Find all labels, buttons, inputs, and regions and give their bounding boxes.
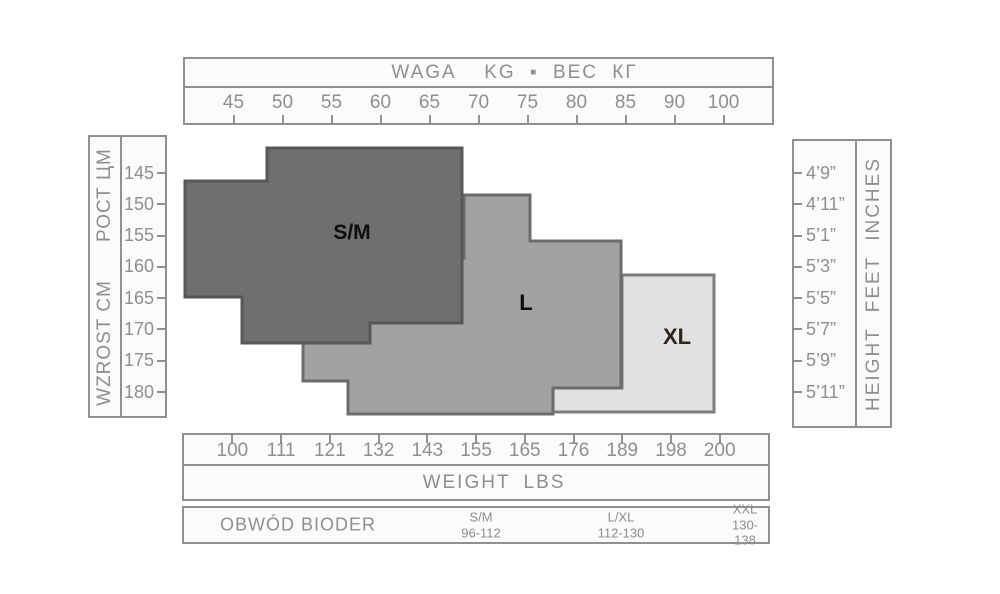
tick-mark bbox=[157, 360, 165, 362]
lbs-tick-label: 111 bbox=[267, 440, 296, 462]
right-axis-title: HEIGHT FEET INCHES bbox=[863, 157, 885, 411]
lbs-tick-label: 100 bbox=[217, 440, 249, 462]
tick-mark bbox=[157, 328, 165, 330]
kg-tick-label: 45 bbox=[223, 92, 244, 114]
kg-tick: 80 bbox=[552, 88, 601, 123]
cm-tick: 170 bbox=[122, 319, 165, 339]
tick-mark bbox=[794, 203, 802, 205]
tick-mark bbox=[475, 435, 477, 443]
size-chart: S/M L XL WAGA KG ▪ ВЕС КГ 45 50 55 60 65… bbox=[0, 0, 1000, 594]
lbs-tick: 143 bbox=[403, 435, 452, 464]
lbs-tick: 100 bbox=[208, 435, 257, 464]
right-axis-title-text: HEIGHT FEET INCHES bbox=[863, 157, 885, 411]
lbs-tick-label: 143 bbox=[411, 440, 443, 462]
hip-entry-size: S/M bbox=[461, 509, 501, 525]
tick-mark bbox=[426, 435, 428, 443]
right-axis-feet: 4’9” 4’11” 5’1” 5’3” 5’5” 5’7” 5’9” 5’11… bbox=[792, 139, 857, 428]
tick-mark bbox=[719, 435, 721, 443]
tick-mark bbox=[478, 115, 480, 123]
kg-tick-label: 90 bbox=[664, 92, 685, 114]
hip-entry-range: 112-130 bbox=[598, 525, 645, 540]
feet-tick-label: 5’9” bbox=[806, 350, 836, 371]
lbs-tick: 200 bbox=[695, 435, 744, 464]
tick-mark bbox=[794, 235, 802, 237]
feet-tick-label: 5’1” bbox=[806, 225, 836, 246]
lbs-tick-label: 198 bbox=[655, 440, 687, 462]
tick-mark bbox=[282, 115, 284, 123]
tick-mark bbox=[157, 266, 165, 268]
tick-mark bbox=[157, 172, 165, 174]
lbs-tick-label: 155 bbox=[460, 440, 492, 462]
tick-mark bbox=[429, 115, 431, 123]
region-sm bbox=[185, 148, 462, 343]
lbs-tick-label: 176 bbox=[558, 440, 590, 462]
lbs-tick: 176 bbox=[549, 435, 598, 464]
cm-tick-label: 145 bbox=[124, 163, 154, 184]
feet-tick: 5’11” bbox=[794, 382, 855, 402]
top-axis-kg: 45 50 55 60 65 70 75 80 85 90 100 bbox=[183, 86, 774, 125]
kg-tick: 55 bbox=[307, 88, 356, 123]
tick-mark bbox=[331, 115, 333, 123]
lbs-tick: 165 bbox=[500, 435, 549, 464]
feet-tick: 4’9” bbox=[794, 163, 855, 183]
left-axis-title-box: WZROST CMРОСТ ЦМ bbox=[88, 135, 122, 418]
tick-mark bbox=[380, 115, 382, 123]
tick-mark bbox=[794, 297, 802, 299]
lbs-tick-label: 189 bbox=[606, 440, 638, 462]
hip-table-label: OBWÓD BIODER bbox=[220, 515, 376, 536]
left-axis-title: WZROST CMРОСТ ЦМ bbox=[94, 148, 116, 406]
kg-tick: 60 bbox=[356, 88, 405, 123]
kg-tick-label: 60 bbox=[370, 92, 391, 114]
kg-tick-label: 65 bbox=[419, 92, 440, 114]
lbs-tick-label: 200 bbox=[704, 440, 736, 462]
kg-tick: 50 bbox=[258, 88, 307, 123]
kg-tick: 75 bbox=[503, 88, 552, 123]
cm-tick: 150 bbox=[122, 194, 165, 214]
tick-mark bbox=[670, 435, 672, 443]
kg-tick-label: 100 bbox=[708, 92, 740, 114]
feet-tick: 5’9” bbox=[794, 351, 855, 371]
cm-tick: 180 bbox=[122, 382, 165, 402]
feet-tick-label: 5’11” bbox=[806, 382, 845, 403]
lbs-tick-label: 132 bbox=[363, 440, 395, 462]
cm-tick-label: 150 bbox=[124, 194, 154, 215]
hip-entry-range: 96-112 bbox=[461, 525, 501, 540]
hip-entry-sm: S/M 96-112 bbox=[461, 509, 501, 540]
left-axis-cm: 145 150 155 160 165 170 175 180 bbox=[120, 135, 167, 418]
top-axis-title: WAGA KG ▪ ВЕС КГ bbox=[391, 62, 637, 84]
cm-tick: 165 bbox=[122, 288, 165, 308]
tick-mark bbox=[329, 435, 331, 443]
bottom-axis-title-box: WEIGHT LBS bbox=[182, 464, 770, 501]
kg-tick: 100 bbox=[699, 88, 748, 123]
cm-tick-label: 160 bbox=[124, 256, 154, 277]
lbs-tick: 111 bbox=[257, 435, 306, 464]
lbs-tick-label: 121 bbox=[314, 440, 346, 462]
kg-tick-label: 50 bbox=[272, 92, 293, 114]
feet-tick: 4’11” bbox=[794, 194, 855, 214]
cm-tick-label: 180 bbox=[124, 382, 154, 403]
feet-tick-label: 4’11” bbox=[806, 194, 845, 215]
feet-tick: 5’1” bbox=[794, 226, 855, 246]
kg-tick: 85 bbox=[601, 88, 650, 123]
kg-tick: 65 bbox=[405, 88, 454, 123]
cm-tick-label: 155 bbox=[124, 225, 154, 246]
tick-mark bbox=[794, 360, 802, 362]
lbs-tick: 155 bbox=[452, 435, 501, 464]
cm-tick: 155 bbox=[122, 226, 165, 246]
tick-mark bbox=[794, 391, 802, 393]
cm-tick-label: 175 bbox=[124, 350, 154, 371]
tick-mark bbox=[573, 435, 575, 443]
bottom-axis-title: WEIGHT LBS bbox=[423, 472, 566, 494]
kg-tick: 45 bbox=[209, 88, 258, 123]
feet-tick-label: 5’7” bbox=[806, 319, 836, 340]
tick-mark bbox=[157, 203, 165, 205]
kg-tick: 90 bbox=[650, 88, 699, 123]
lbs-tick: 121 bbox=[305, 435, 354, 464]
left-axis-title-pl: WZROST CM bbox=[94, 280, 116, 406]
hip-entry-range: 130-138 bbox=[732, 517, 758, 548]
tick-mark bbox=[576, 115, 578, 123]
feet-tick: 5’3” bbox=[794, 257, 855, 277]
kg-tick-label: 80 bbox=[566, 92, 587, 114]
lbs-tick: 198 bbox=[647, 435, 696, 464]
tick-mark bbox=[621, 435, 623, 443]
tick-mark bbox=[723, 115, 725, 123]
cm-tick-label: 165 bbox=[124, 288, 154, 309]
tick-mark bbox=[794, 328, 802, 330]
cm-tick: 160 bbox=[122, 257, 165, 277]
top-axis-title-box: WAGA KG ▪ ВЕС КГ bbox=[183, 57, 774, 88]
lbs-tick-label: 165 bbox=[509, 440, 541, 462]
region-label-sm: S/M bbox=[333, 221, 370, 245]
tick-mark bbox=[794, 172, 802, 174]
hip-entry-size: XXL bbox=[732, 502, 758, 518]
hip-entry-xxl: XXL 130-138 bbox=[732, 502, 758, 549]
kg-tick: 70 bbox=[454, 88, 503, 123]
hip-table: OBWÓD BIODER S/M 96-112 L/XL 112-130 XXL… bbox=[182, 506, 770, 544]
region-label-xl: XL bbox=[663, 324, 691, 350]
hip-entry-lxl: L/XL 112-130 bbox=[598, 509, 645, 540]
tick-mark bbox=[280, 435, 282, 443]
cm-tick: 145 bbox=[122, 163, 165, 183]
bottom-axis-lbs: 100 111 121 132 143 155 165 176 189 198 … bbox=[182, 433, 770, 466]
feet-tick-label: 5’5” bbox=[806, 288, 836, 309]
feet-tick-label: 4’9” bbox=[806, 163, 836, 184]
cm-tick-label: 170 bbox=[124, 319, 154, 340]
tick-mark bbox=[157, 297, 165, 299]
feet-tick-label: 5’3” bbox=[806, 256, 836, 277]
feet-tick: 5’7” bbox=[794, 319, 855, 339]
kg-tick-label: 85 bbox=[615, 92, 636, 114]
kg-tick-label: 75 bbox=[517, 92, 538, 114]
lbs-tick: 189 bbox=[598, 435, 647, 464]
tick-mark bbox=[794, 266, 802, 268]
tick-mark bbox=[625, 115, 627, 123]
tick-mark bbox=[157, 391, 165, 393]
left-axis-title-ru: РОСТ ЦМ bbox=[94, 148, 116, 242]
tick-mark bbox=[527, 115, 529, 123]
tick-mark bbox=[157, 235, 165, 237]
tick-mark bbox=[378, 435, 380, 443]
right-axis-title-box: HEIGHT FEET INCHES bbox=[855, 139, 892, 428]
hip-entry-size: L/XL bbox=[598, 509, 645, 525]
tick-mark bbox=[674, 115, 676, 123]
feet-tick: 5’5” bbox=[794, 288, 855, 308]
tick-mark bbox=[231, 435, 233, 443]
tick-mark bbox=[524, 435, 526, 443]
kg-tick-label: 55 bbox=[321, 92, 342, 114]
tick-mark bbox=[233, 115, 235, 123]
lbs-tick: 132 bbox=[354, 435, 403, 464]
cm-tick: 175 bbox=[122, 351, 165, 371]
kg-tick-label: 70 bbox=[468, 92, 489, 114]
region-label-l: L bbox=[519, 290, 532, 316]
